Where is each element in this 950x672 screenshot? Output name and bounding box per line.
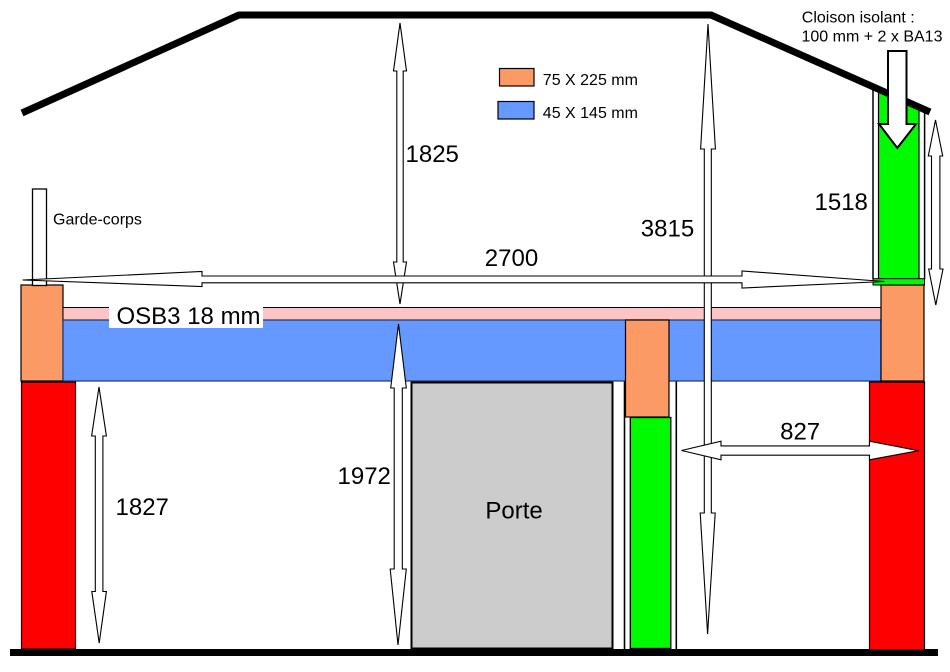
svg-text:1827: 1827 (116, 494, 169, 521)
svg-text:45 X 145 mm: 45 X 145 mm (543, 105, 638, 122)
svg-text:Cloison isolant :: Cloison isolant : (802, 9, 915, 26)
svg-text:100 mm + 2 x BA13: 100 mm + 2 x BA13 (802, 29, 943, 46)
svg-text:1825: 1825 (406, 141, 459, 168)
svg-text:827: 827 (780, 418, 820, 445)
svg-text:1972: 1972 (338, 463, 391, 490)
svg-text:OSB3 18 mm: OSB3 18 mm (117, 303, 261, 330)
svg-text:Porte: Porte (485, 498, 542, 525)
svg-text:1518: 1518 (815, 189, 868, 216)
svg-text:75 X 225 mm: 75 X 225 mm (543, 72, 638, 89)
svg-text:2700: 2700 (485, 245, 538, 272)
svg-text:Garde-corps: Garde-corps (53, 212, 142, 229)
svg-text:3815: 3815 (641, 216, 694, 243)
